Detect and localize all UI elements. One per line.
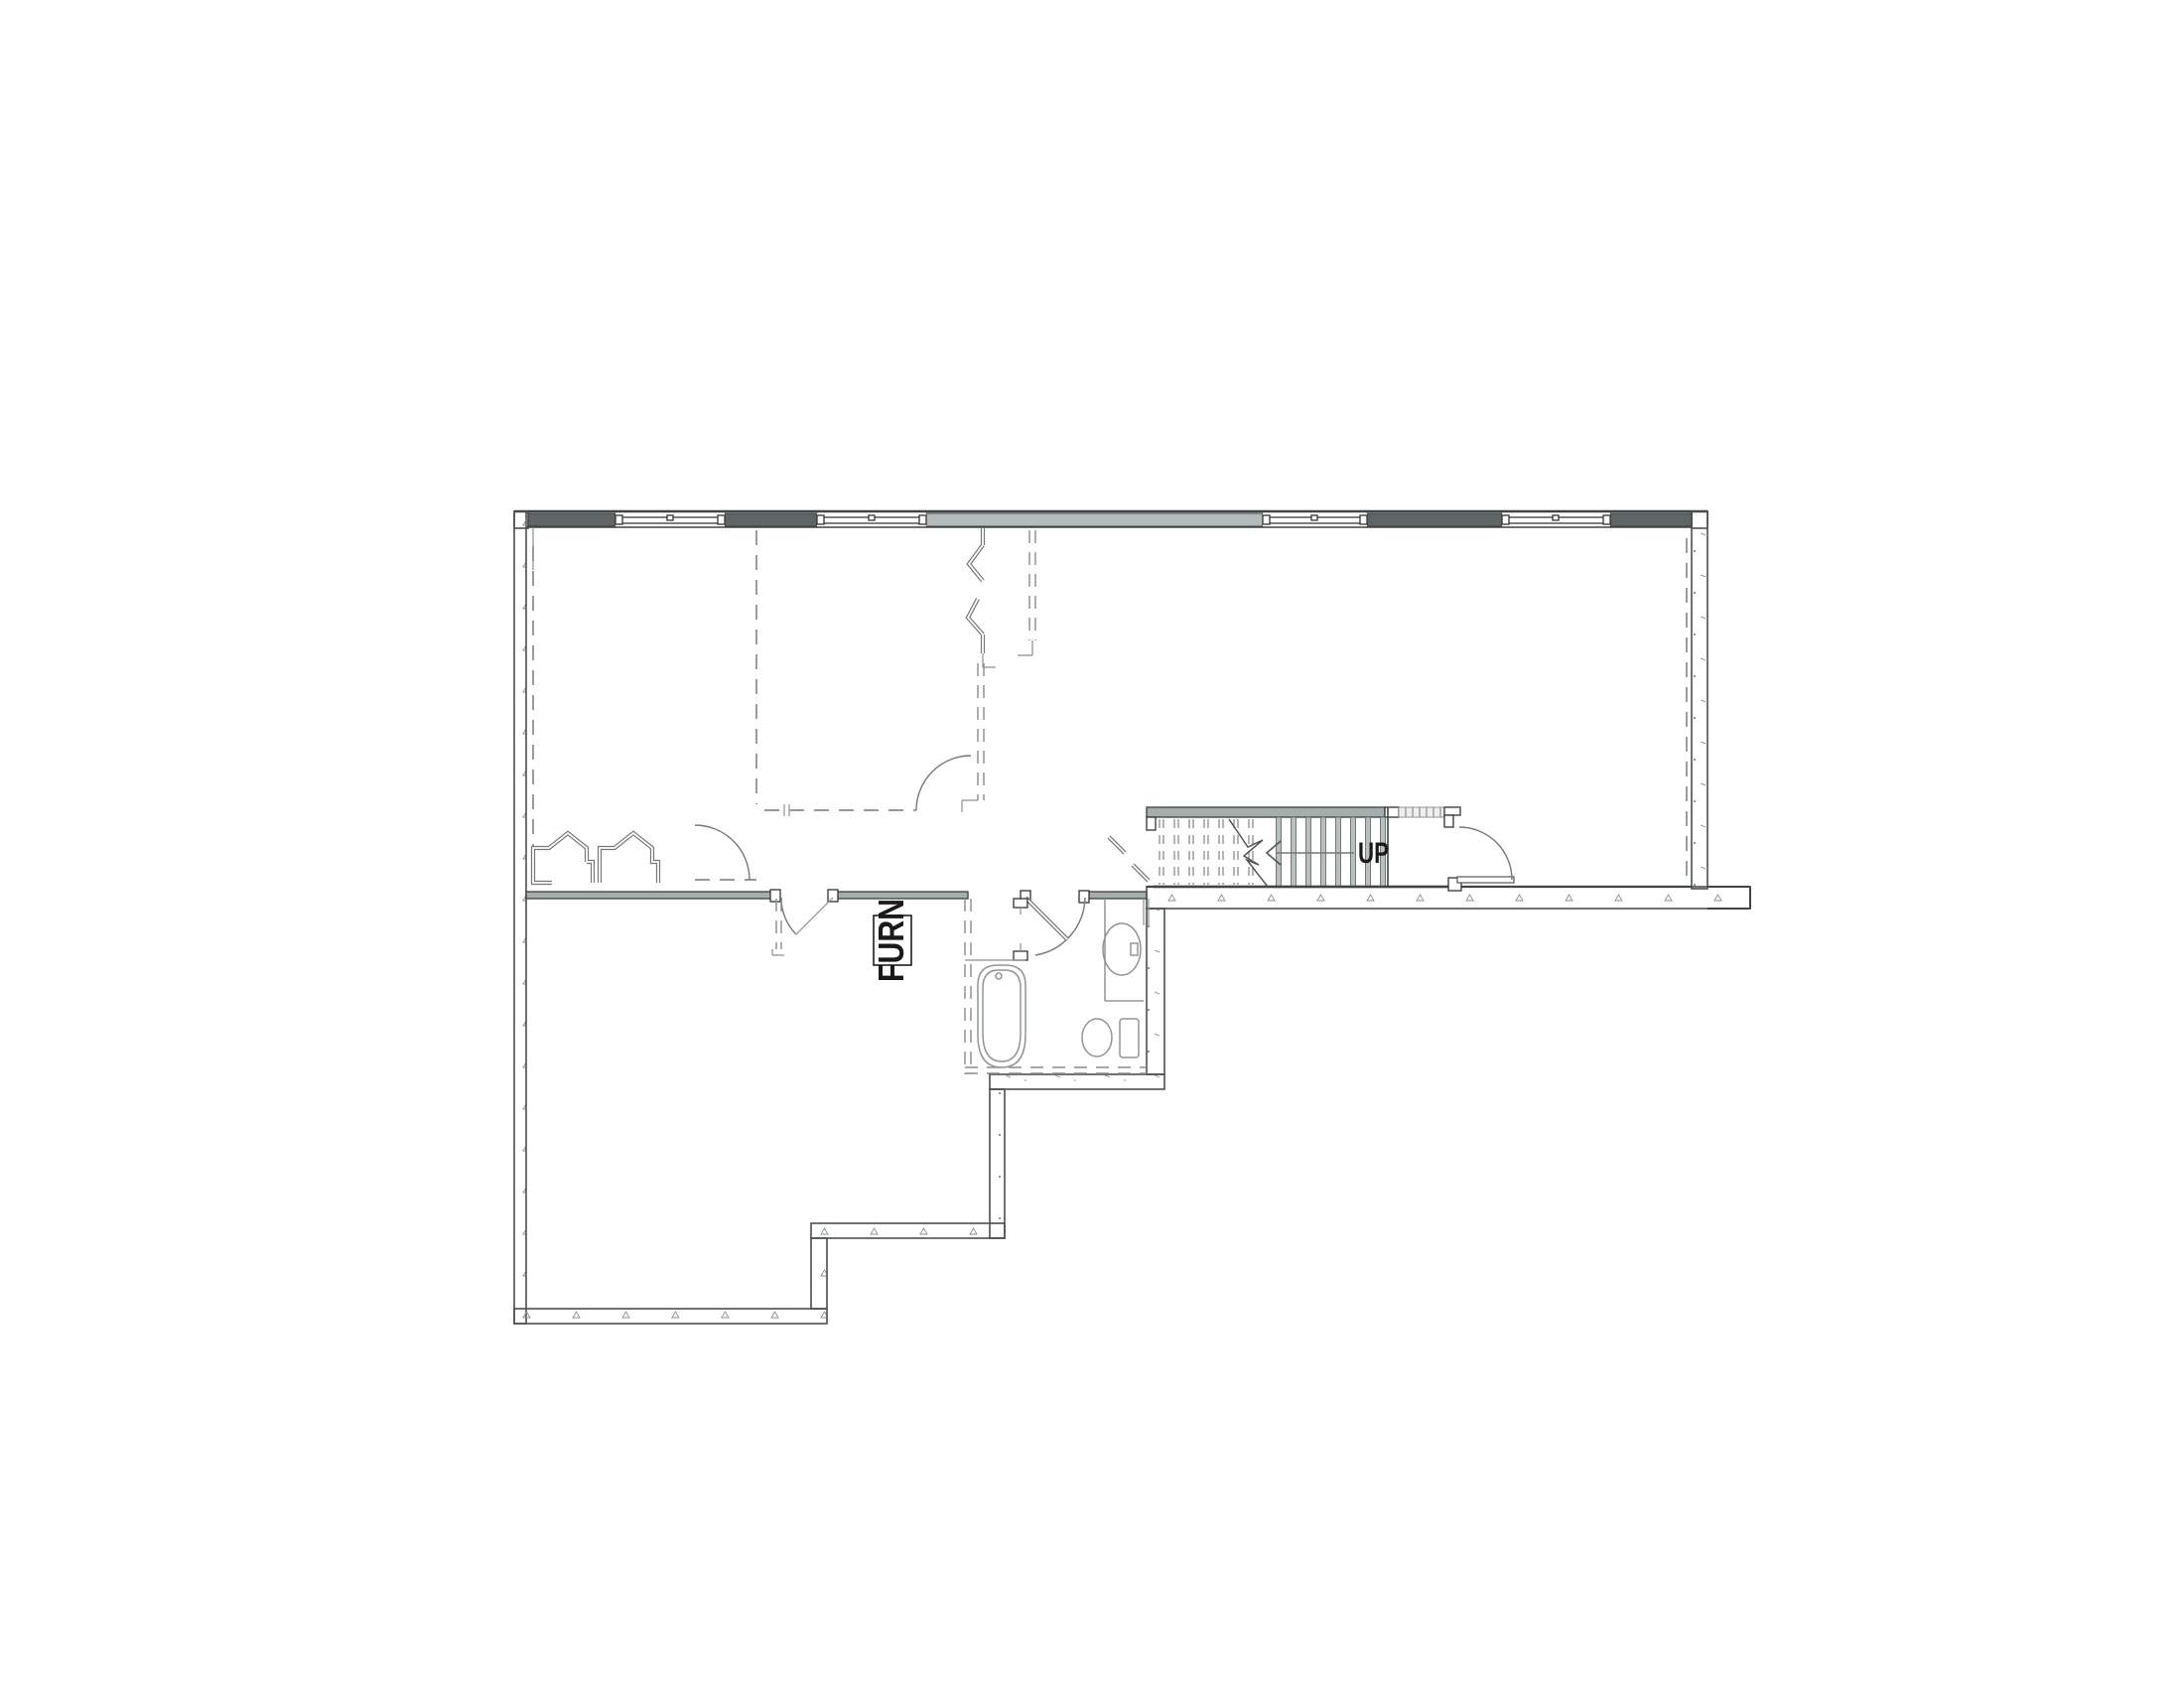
top-wall <box>514 511 1707 528</box>
duct-dashed-line-lower <box>978 663 984 800</box>
door-jamb <box>770 890 780 902</box>
furnace: FURN <box>772 899 911 982</box>
step-wall-horizontal <box>811 1223 1005 1238</box>
landing-jamb <box>1385 807 1399 817</box>
top-right-corner <box>1692 511 1707 528</box>
door-jamb <box>828 890 838 902</box>
chimney-foot <box>983 653 996 667</box>
window-opening-4 <box>1502 513 1610 526</box>
bottom-wall <box>514 1309 827 1324</box>
window-opening-2 <box>817 513 926 526</box>
window-opening-1 <box>615 513 725 526</box>
furnace-label: FURN <box>871 899 911 982</box>
stair-top-wall <box>1147 807 1385 817</box>
duct-hook <box>962 800 978 812</box>
outer-walls <box>514 511 1750 1324</box>
partition-jamb-tick <box>784 804 789 816</box>
sink-bowl <box>1103 923 1141 975</box>
toilet-bowl <box>1082 1019 1112 1056</box>
toilet-tank <box>1120 1019 1139 1057</box>
bathroom-dashed-wall-bottom <box>965 1067 1147 1073</box>
left-wall <box>514 511 526 1324</box>
door-swing-arc <box>1035 898 1085 955</box>
door-swing-arc <box>1459 827 1512 880</box>
sink-faucet-icon <box>1131 943 1138 955</box>
bathroom-right-wall <box>1147 909 1164 1074</box>
tub-alcove-jamb <box>1014 951 1027 960</box>
duct-dashed-line <box>1029 530 1035 640</box>
dashed-partitions <box>695 530 971 880</box>
step-wall-vertical-2 <box>811 1238 827 1309</box>
sink <box>1103 899 1144 1001</box>
wall-segment <box>725 513 817 526</box>
furnace-closet-foot <box>772 949 784 955</box>
door-swing-arc <box>781 898 796 934</box>
floor-plan: UP FURN <box>0 0 2184 1688</box>
tub-faucet-icon <box>996 973 1002 979</box>
interior-walls <box>526 890 1149 925</box>
bathroom-dashed-wall-left <box>965 899 971 1074</box>
door-jamb-bracket <box>1444 807 1460 815</box>
stair-left-jamb <box>1147 817 1156 830</box>
tub-alcove-jamb <box>1014 899 1027 908</box>
stairs: UP <box>1109 807 1514 891</box>
toilet <box>1082 1019 1139 1057</box>
wall-segment <box>528 513 615 526</box>
door-jamb <box>1079 891 1089 903</box>
window-opening-3 <box>1263 513 1367 526</box>
duct-foot <box>1018 640 1032 655</box>
door-swing-arc <box>695 825 750 880</box>
stair-break-line <box>1229 819 1268 887</box>
wall-segment <box>1610 513 1692 526</box>
bathroom-bottom-wall <box>990 1074 1164 1089</box>
interior-wall-a <box>526 892 776 899</box>
wall-segment <box>926 513 1263 526</box>
door-jamb-bracket <box>1444 815 1453 827</box>
window-well-symbols <box>533 833 658 883</box>
wall-segment <box>1367 513 1502 526</box>
chimney-duct-symbol <box>962 528 1035 812</box>
step-wall-vertical-1 <box>990 1089 1005 1238</box>
bathtub <box>965 960 1025 1067</box>
interior-wall-b <box>834 892 968 899</box>
stair-treads-dashed <box>1160 819 1253 885</box>
furnace-closet-dashed-wall <box>776 899 781 949</box>
up-label: UP <box>1358 837 1389 870</box>
top-left-corner <box>514 511 528 528</box>
right-wall <box>1692 511 1707 889</box>
door-leaf <box>1457 877 1514 883</box>
door-leaf-line <box>796 898 833 934</box>
doors <box>781 898 1085 955</box>
door-swing-arc <box>916 756 971 810</box>
page: UP FURN <box>0 0 2184 1688</box>
interior-wall-c <box>1085 892 1147 899</box>
